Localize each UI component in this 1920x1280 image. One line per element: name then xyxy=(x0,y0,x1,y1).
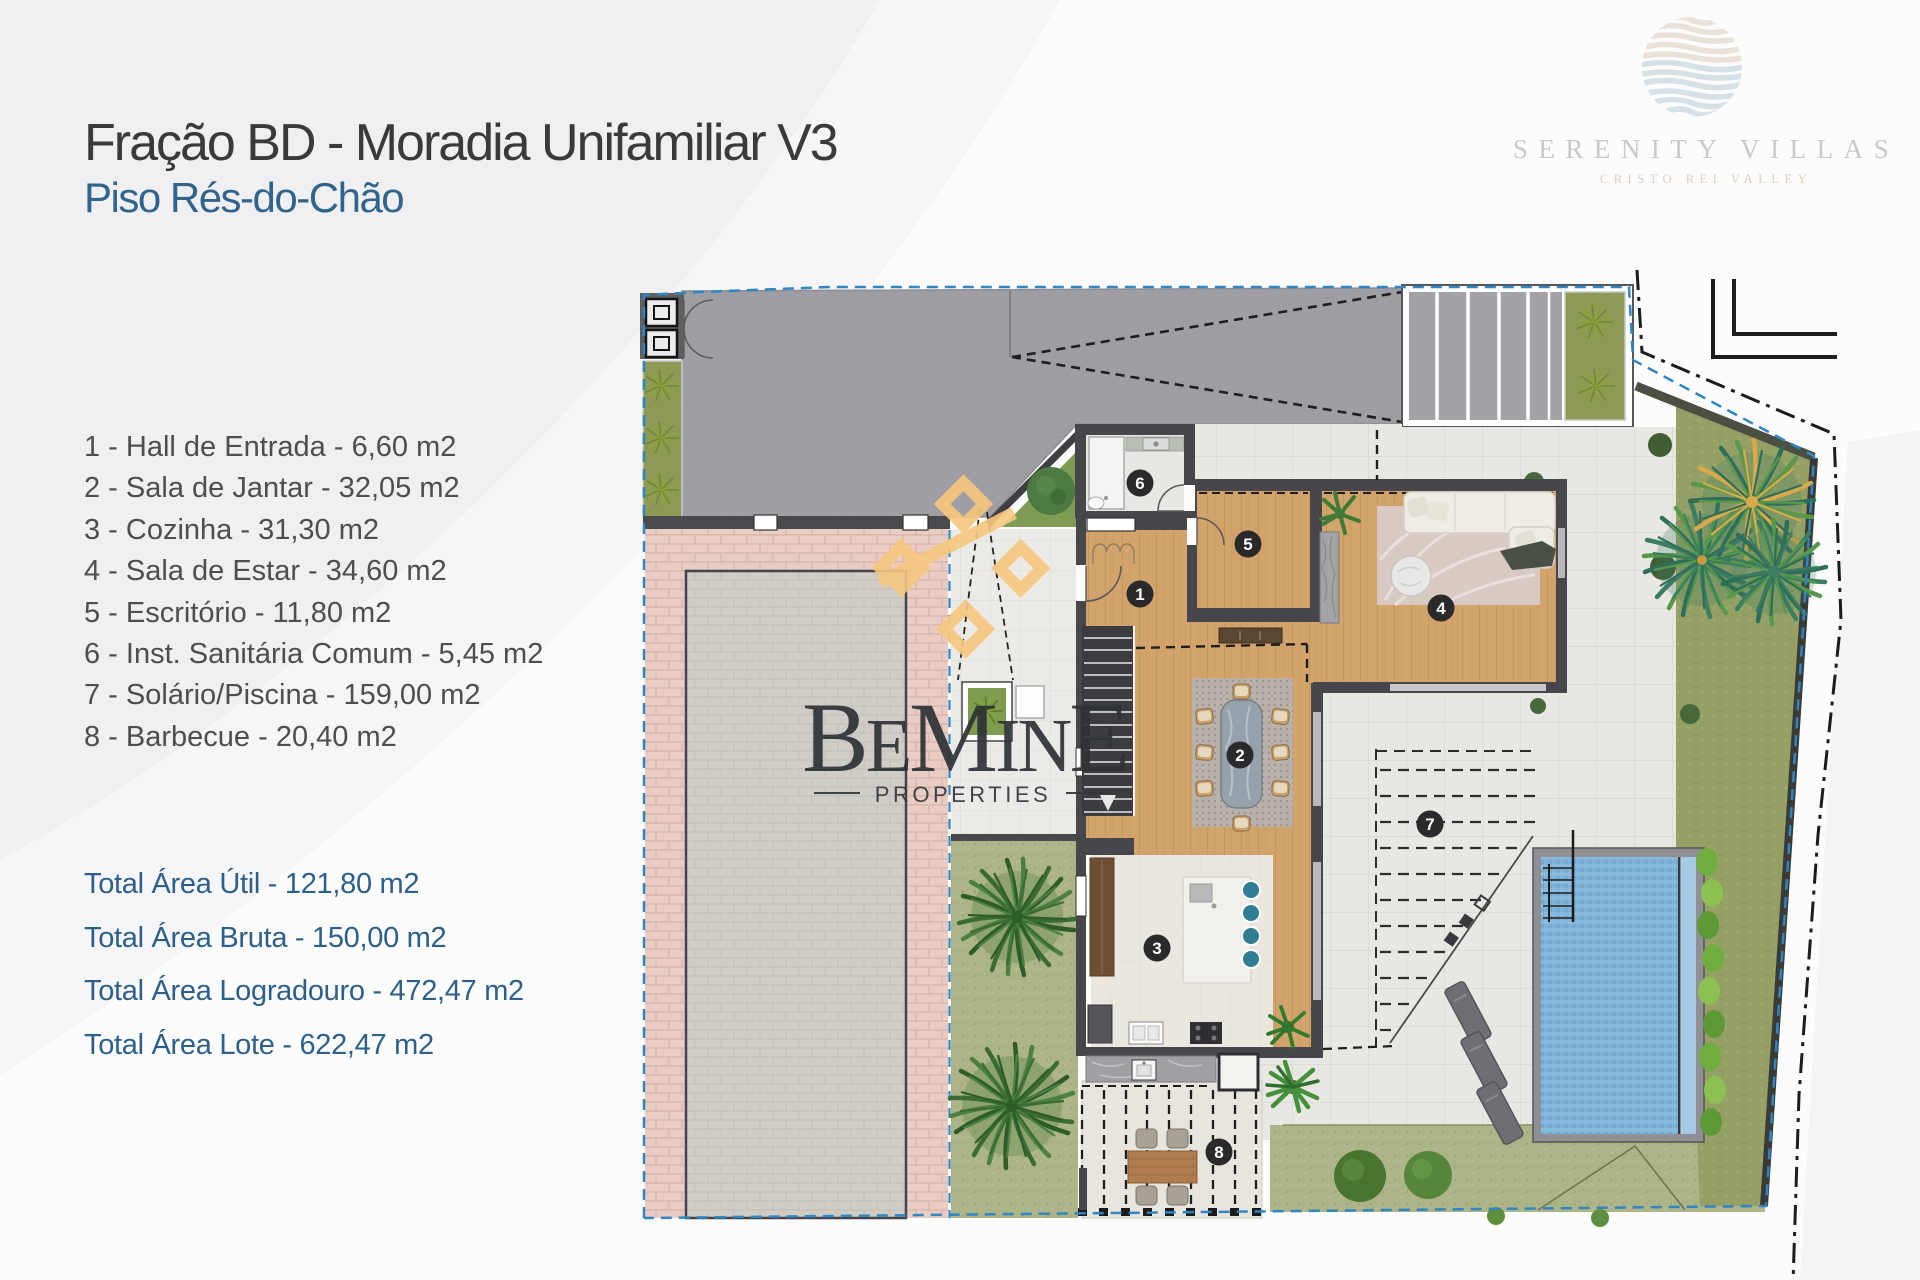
svg-text:BEMINE: BEMINE xyxy=(802,682,1127,793)
svg-text:5: 5 xyxy=(1243,535,1252,554)
svg-text:PROPERTIES: PROPERTIES xyxy=(875,782,1051,807)
svg-text:1: 1 xyxy=(1135,585,1144,604)
svg-text:6: 6 xyxy=(1135,474,1144,493)
svg-text:3: 3 xyxy=(1152,939,1161,958)
svg-text:7: 7 xyxy=(1425,815,1434,834)
svg-text:SERENITY VILLAS: SERENITY VILLAS xyxy=(1513,134,1899,164)
svg-text:8: 8 xyxy=(1214,1143,1223,1162)
svg-text:CRISTO REI VALLEY: CRISTO REI VALLEY xyxy=(1600,172,1812,186)
svg-text:2: 2 xyxy=(1235,746,1244,765)
svg-text:4: 4 xyxy=(1436,599,1446,618)
